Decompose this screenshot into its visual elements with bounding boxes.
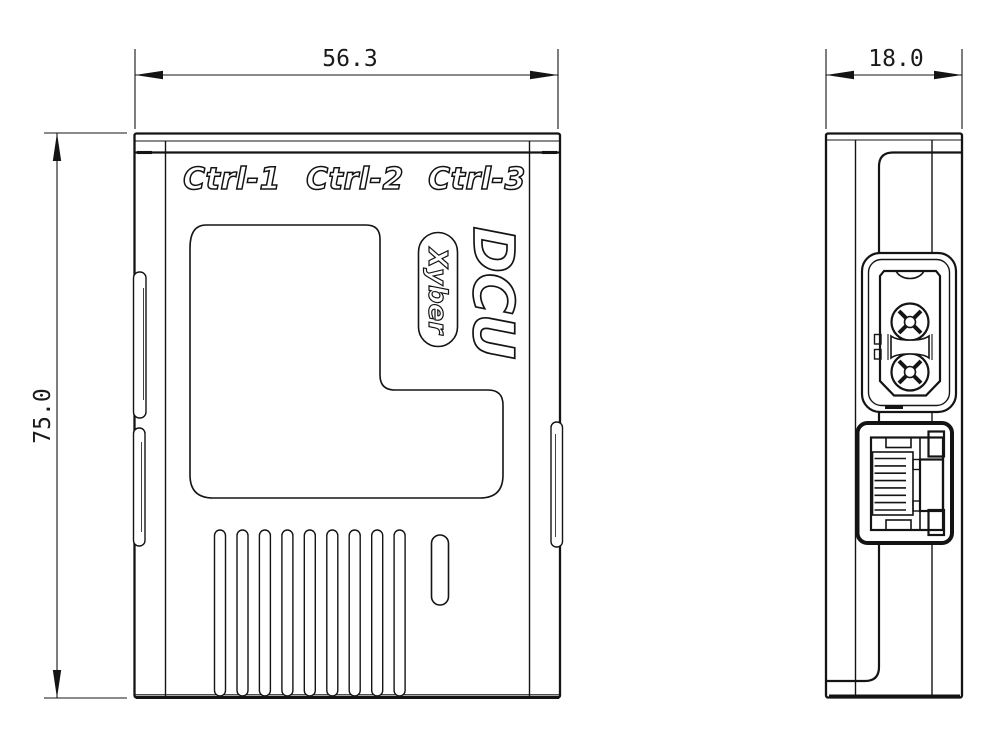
dim-arrow-left <box>826 71 854 79</box>
dim-depth: 18.0 <box>826 46 962 129</box>
dim-arrow-top <box>53 133 61 161</box>
cooling-rib <box>327 530 338 696</box>
cooling-rib <box>349 530 360 696</box>
brand-text: Xyber <box>422 246 452 336</box>
front-body-outline <box>135 134 561 698</box>
left-latch-lower <box>134 428 146 546</box>
product-name-text: DCU <box>460 226 525 359</box>
brand-badge: Xyber <box>419 233 458 347</box>
port-label-ctrl-2: Ctrl-2 <box>306 162 404 197</box>
right-latch <box>551 422 563 547</box>
dim-width: 56.3 <box>135 46 558 129</box>
power-terminal-upper <box>892 304 929 341</box>
cooling-rib <box>304 530 315 696</box>
dim-arrow-right <box>934 71 962 79</box>
cooling-rib <box>282 530 293 696</box>
dim-arrow-bottom <box>53 670 61 698</box>
side-body-outline <box>826 134 962 698</box>
side-view <box>826 134 962 698</box>
left-latch-upper <box>134 272 147 418</box>
dim-height-value: 75.0 <box>30 388 56 443</box>
power-terminal-lower <box>892 354 929 391</box>
technical-drawing-page: Ctrl-1 Ctrl-2 Ctrl-3 DCU Xyber <box>0 0 1000 737</box>
port-label-ctrl-1: Ctrl-1 <box>183 162 281 197</box>
dim-arrow-left <box>135 71 163 79</box>
cooling-rib <box>215 530 226 696</box>
dim-arrow-right <box>530 71 558 79</box>
dim-height: 75.0 <box>30 133 127 698</box>
front-view: Ctrl-1 Ctrl-2 Ctrl-3 DCU Xyber <box>134 134 563 698</box>
dim-depth-value: 18.0 <box>868 46 923 72</box>
cooling-ribs <box>215 530 406 696</box>
cooling-rib <box>372 530 383 696</box>
cooling-rib <box>259 530 270 696</box>
technical-drawing-canvas: Ctrl-1 Ctrl-2 Ctrl-3 DCU Xyber <box>0 0 1000 737</box>
cooling-rib <box>237 530 248 696</box>
indicator-slot <box>432 535 449 605</box>
power-connector <box>862 253 956 412</box>
port-label-ctrl-3: Ctrl-3 <box>428 162 526 197</box>
cooling-rib <box>394 530 405 696</box>
ethernet-port <box>858 423 953 543</box>
dim-width-value: 56.3 <box>322 46 377 72</box>
